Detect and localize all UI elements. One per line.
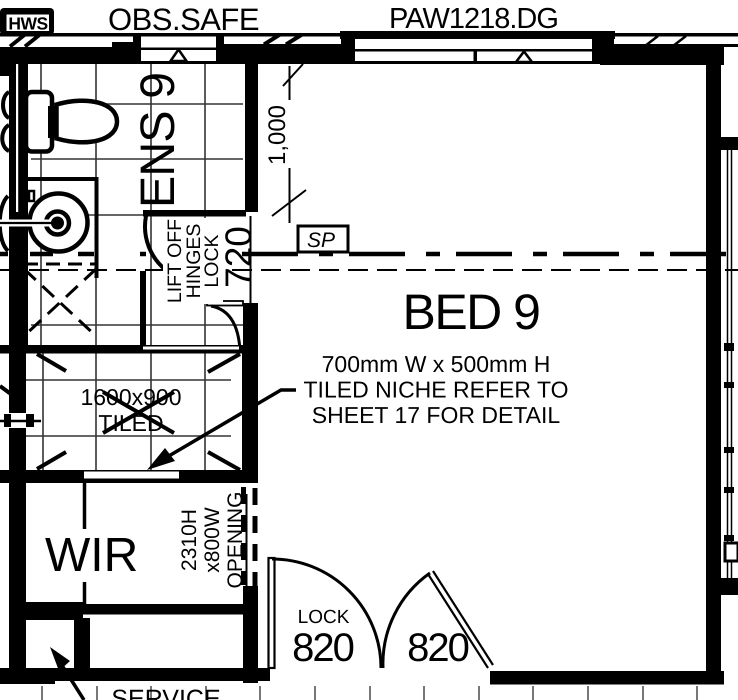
svg-text:1,000: 1,000	[264, 105, 291, 165]
svg-text:WIR: WIR	[45, 529, 138, 582]
svg-text:820: 820	[292, 626, 353, 670]
svg-text:SP: SP	[307, 229, 335, 252]
svg-text:TILED NICHE REFER TO: TILED NICHE REFER TO	[304, 377, 569, 403]
svg-text:BED 9: BED 9	[402, 284, 539, 340]
svg-text:720: 720	[218, 226, 259, 288]
svg-text:OBS.SAFE: OBS.SAFE	[108, 2, 259, 37]
svg-text:OPENING: OPENING	[224, 492, 247, 589]
svg-text:SHEET 17 FOR DETAIL: SHEET 17 FOR DETAIL	[312, 402, 561, 428]
svg-text:700mm W x 500mm H: 700mm W x 500mm H	[322, 351, 551, 377]
svg-text:x800W: x800W	[201, 507, 224, 573]
svg-text:ENS 9: ENS 9	[131, 73, 185, 208]
svg-text:820: 820	[407, 626, 468, 670]
svg-text:LOCK: LOCK	[298, 607, 350, 628]
svg-text:PAW1218.DG: PAW1218.DG	[389, 3, 558, 35]
svg-text:2310H: 2310H	[178, 509, 201, 571]
svg-text:HWS: HWS	[8, 14, 47, 34]
svg-text:SERVICE: SERVICE	[111, 685, 220, 700]
